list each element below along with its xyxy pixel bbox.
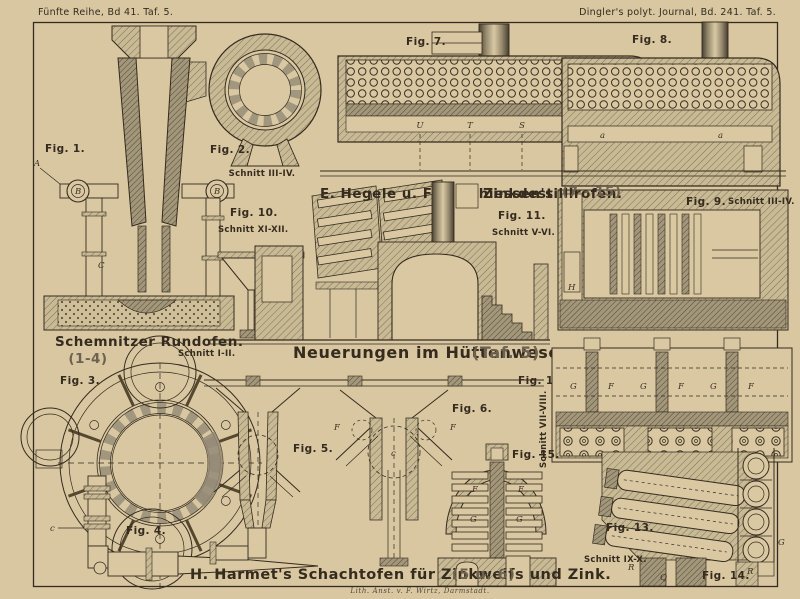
schachtofen-heading: H. Harmet's Schachtofen für Zinkweiſs un… xyxy=(190,567,611,583)
fig12-letter-5: G xyxy=(710,382,717,392)
destillirofen-figs: (7 - 15) xyxy=(562,184,622,200)
fig15-label: Fig. 15. xyxy=(512,449,560,461)
fig9-schnitt: Schnitt III-IV. xyxy=(728,197,795,207)
fig9-letter-h: H xyxy=(567,283,576,293)
fig1-letter-b1: B xyxy=(74,187,81,197)
rundofen-title: Schemnitzer Rundofen. xyxy=(55,334,243,350)
fig2-label: Fig. 2. xyxy=(210,144,250,156)
fig8-letter-a1: a xyxy=(600,131,605,141)
fig5-shaft-furnace: Fig. 5. xyxy=(210,388,333,564)
fig12-letter-3: G xyxy=(640,382,647,392)
schachtofen-figs: (5 u. 6) xyxy=(452,567,515,583)
fig14-letter-r: R xyxy=(746,567,754,577)
margin-note-left: Fünfte Reihe, Bd 41. Taf. 5. xyxy=(38,7,173,18)
fig1-label: Fig. 1. xyxy=(45,143,85,155)
fig6-letter-c: c xyxy=(391,449,396,459)
main-title-ref: (Taf. 5) xyxy=(472,343,540,362)
fig15-letter-g1: G xyxy=(470,515,477,525)
fig14-label: Fig. 14. xyxy=(702,570,750,582)
fig8-retort-bank-flue: Fig. 8. a a xyxy=(562,22,780,186)
fig11-schnitt: Schnitt V-VI. xyxy=(492,228,555,238)
fig13-letter-r: R xyxy=(627,563,635,573)
fig2-schnitt: Schnitt III-IV. xyxy=(229,169,296,179)
fig1-letter-a: A xyxy=(33,159,40,169)
fig11-label: Fig. 11. xyxy=(498,210,546,222)
fig13-schnitt: Schnitt IX-X. xyxy=(584,555,647,565)
fig13-inclined-retorts: Fig. 13. Schnitt IX-X. R Q xyxy=(584,452,756,586)
lithographer-credit: Lith. Anst. v. F. Wirtz, Darmstadt. xyxy=(349,587,489,595)
fig1-shaft-furnace-section: Fig. 1. A B B C xyxy=(33,26,234,330)
fig4-tuyere-pipe: Fig. 4. c xyxy=(50,476,318,580)
fig1-letter-c: C xyxy=(98,261,105,271)
fig8-letter-a2: a xyxy=(718,131,723,141)
lithograph-plate: Fünfte Reihe, Bd 41. Taf. 5. Dingler's p… xyxy=(0,0,800,599)
rundofen-figs: (1-4) xyxy=(68,351,107,367)
fig4-label: Fig. 4. xyxy=(126,525,166,537)
fig6-letter-f2: F xyxy=(449,423,457,433)
fig1-letter-b2: B xyxy=(213,187,220,197)
fig12-letter-4: F xyxy=(677,382,685,392)
fig3-schnitt: Schnitt I-II. xyxy=(178,349,235,359)
fig9-retort-section: Fig. 9. Schnitt III-IV. H xyxy=(558,190,795,330)
charging-platform-rail xyxy=(204,376,544,386)
fig2-ring-cross-section: Fig. 2. Schnitt III-IV. xyxy=(209,34,321,179)
fig6-label: Fig. 6. xyxy=(452,403,492,415)
fig13-letter-q: Q xyxy=(660,573,667,583)
fig15-letter-g2: G xyxy=(516,515,523,525)
plate-drawing: Fünfte Reihe, Bd 41. Taf. 5. Dingler's p… xyxy=(0,0,800,599)
fig13-label: Fig. 13. xyxy=(606,522,654,534)
margin-note-right: Dingler's polyt. Journal, Bd. 241. Taf. … xyxy=(579,7,776,18)
fig12-letter-1: G xyxy=(570,382,577,392)
fig15-letter-f2: F xyxy=(517,485,525,495)
fig7-letter-s: S xyxy=(519,121,525,131)
fig3-label: Fig. 3. xyxy=(60,375,100,387)
fig8-label: Fig. 8. xyxy=(632,34,672,46)
fig12-letter-2: F xyxy=(607,382,615,392)
fig12-letter-6: F xyxy=(747,382,755,392)
fig14-letter-g: G xyxy=(778,538,785,548)
fig7-label: Fig. 7. xyxy=(406,36,446,48)
fig9-label: Fig. 9. xyxy=(686,196,726,208)
fig10-label: Fig. 10. xyxy=(230,207,278,219)
fig6-letter-f1: F xyxy=(333,423,341,433)
fig4-letter-c: c xyxy=(50,524,55,534)
fig15-letter-f1: F xyxy=(471,485,479,495)
fig5-label: Fig. 5. xyxy=(293,443,333,455)
fig7-letter-u: U xyxy=(416,121,424,131)
fig10-schnitt: Schnitt XI-XII. xyxy=(218,225,288,235)
schachtofen-title: H. Harmet's Schachtofen für Zinkweiſs un… xyxy=(190,567,611,583)
